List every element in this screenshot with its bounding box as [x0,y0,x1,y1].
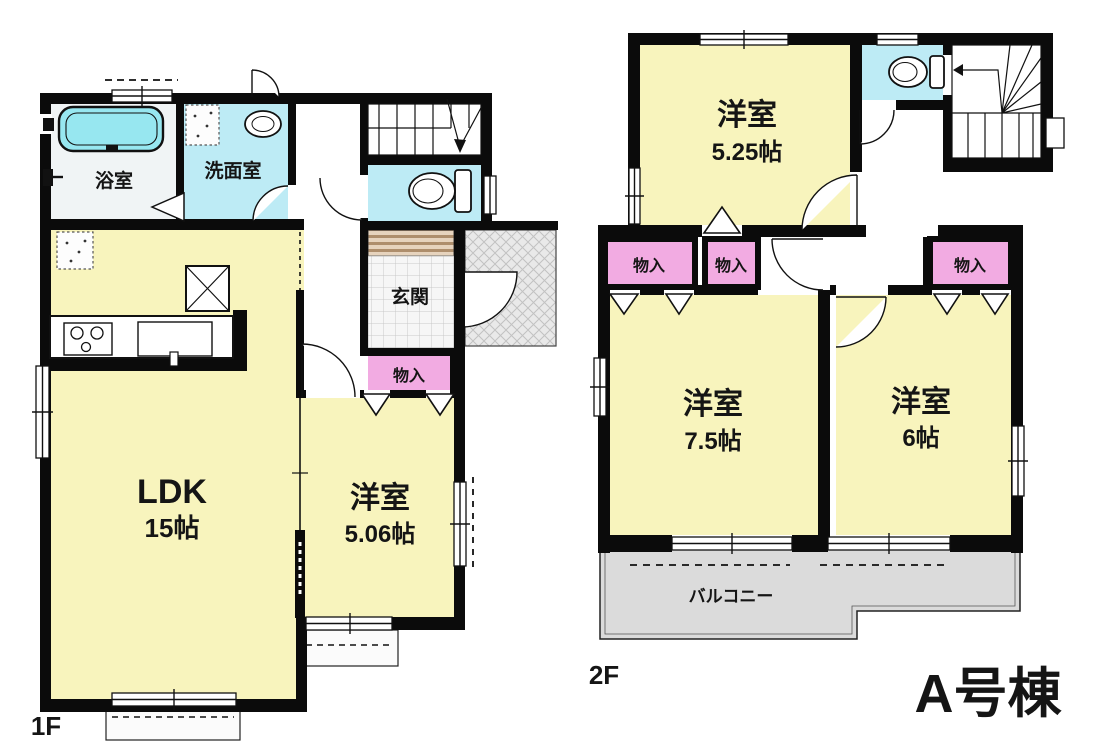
room-75-size: 7.5帖 [684,428,741,455]
toilet-icon-2f [889,56,944,88]
ldk-area [51,230,304,699]
stair-window [1046,118,1064,148]
western-room-size: 5.06帖 [345,521,416,548]
stairs-1f [368,99,482,155]
floor2-label: 2F [589,660,619,690]
room-525-size: 5.25帖 [712,139,783,166]
floorplan-svg: 浴室 洗面室 LDK 15帖 玄関 物入 洋室 5.06帖 1F [0,0,1100,754]
closet3-label: 物入 [954,256,986,275]
closet2-label: 物入 [715,256,747,275]
floor1-label: 1F [31,711,61,741]
pillar-box-icon [186,266,229,311]
room-6-size: 6帖 [902,425,939,452]
closet-label-1f: 物入 [393,366,425,385]
bathtub-icon [59,107,163,152]
bath-label: 浴室 [95,169,133,192]
kitchen-counter [50,310,247,371]
stairs-2f [952,45,1041,158]
washbasin-icon [245,111,281,137]
entrance-step [368,230,454,256]
room-75-label: 洋室 [683,387,743,421]
building-title: A号棟 [915,664,1063,724]
ldk-label: LDK [137,473,207,511]
floor2-plan: 洋室 5.25帖 物入 物入 物入 洋室 7.5帖 洋室 6帖 バルコニー 2F [589,30,1064,690]
floorplan-canvas: 浴室 洗面室 LDK 15帖 玄関 物入 洋室 5.06帖 1F [0,0,1100,754]
stove-icon [64,323,112,355]
balcony-label: バルコニー [689,587,774,606]
room-525-label: 洋室 [717,98,777,132]
entrance-label: 玄関 [391,285,429,308]
toilet-icon-1f [409,170,471,212]
ldk-size: 15帖 [145,513,200,543]
closet1-label: 物入 [633,256,665,275]
western-room-label: 洋室 [350,481,410,515]
washer-space-icon [186,105,219,145]
terrace-under-western-room [300,630,398,666]
fridge-space-icon [57,232,93,269]
room-6-label: 洋室 [891,385,951,419]
washroom-label: 洗面室 [204,159,261,182]
